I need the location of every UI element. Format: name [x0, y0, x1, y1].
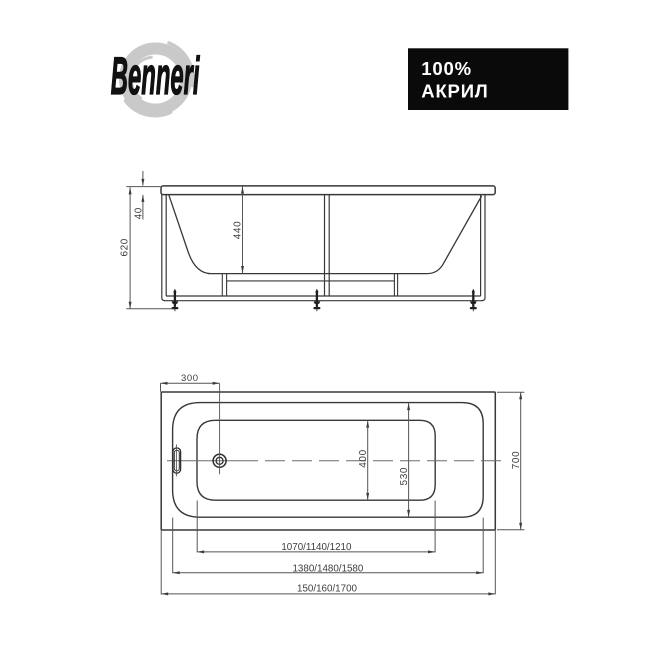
svg-text:АКРИЛ: АКРИЛ [421, 81, 488, 102]
svg-text:100%: 100% [421, 58, 472, 79]
svg-text:Benneri: Benneri [111, 46, 201, 105]
svg-text:300: 300 [181, 373, 199, 384]
svg-text:620: 620 [120, 238, 131, 256]
svg-text:700: 700 [511, 451, 522, 470]
svg-text:1070/1140/1210: 1070/1140/1210 [281, 542, 352, 553]
svg-text:1380/1480/1580: 1380/1480/1580 [292, 563, 363, 574]
svg-text:440: 440 [232, 221, 243, 240]
svg-text:40: 40 [133, 207, 144, 219]
svg-text:400: 400 [358, 449, 369, 468]
svg-text:150/160/1700: 150/160/1700 [297, 584, 357, 595]
svg-text:530: 530 [399, 467, 410, 486]
